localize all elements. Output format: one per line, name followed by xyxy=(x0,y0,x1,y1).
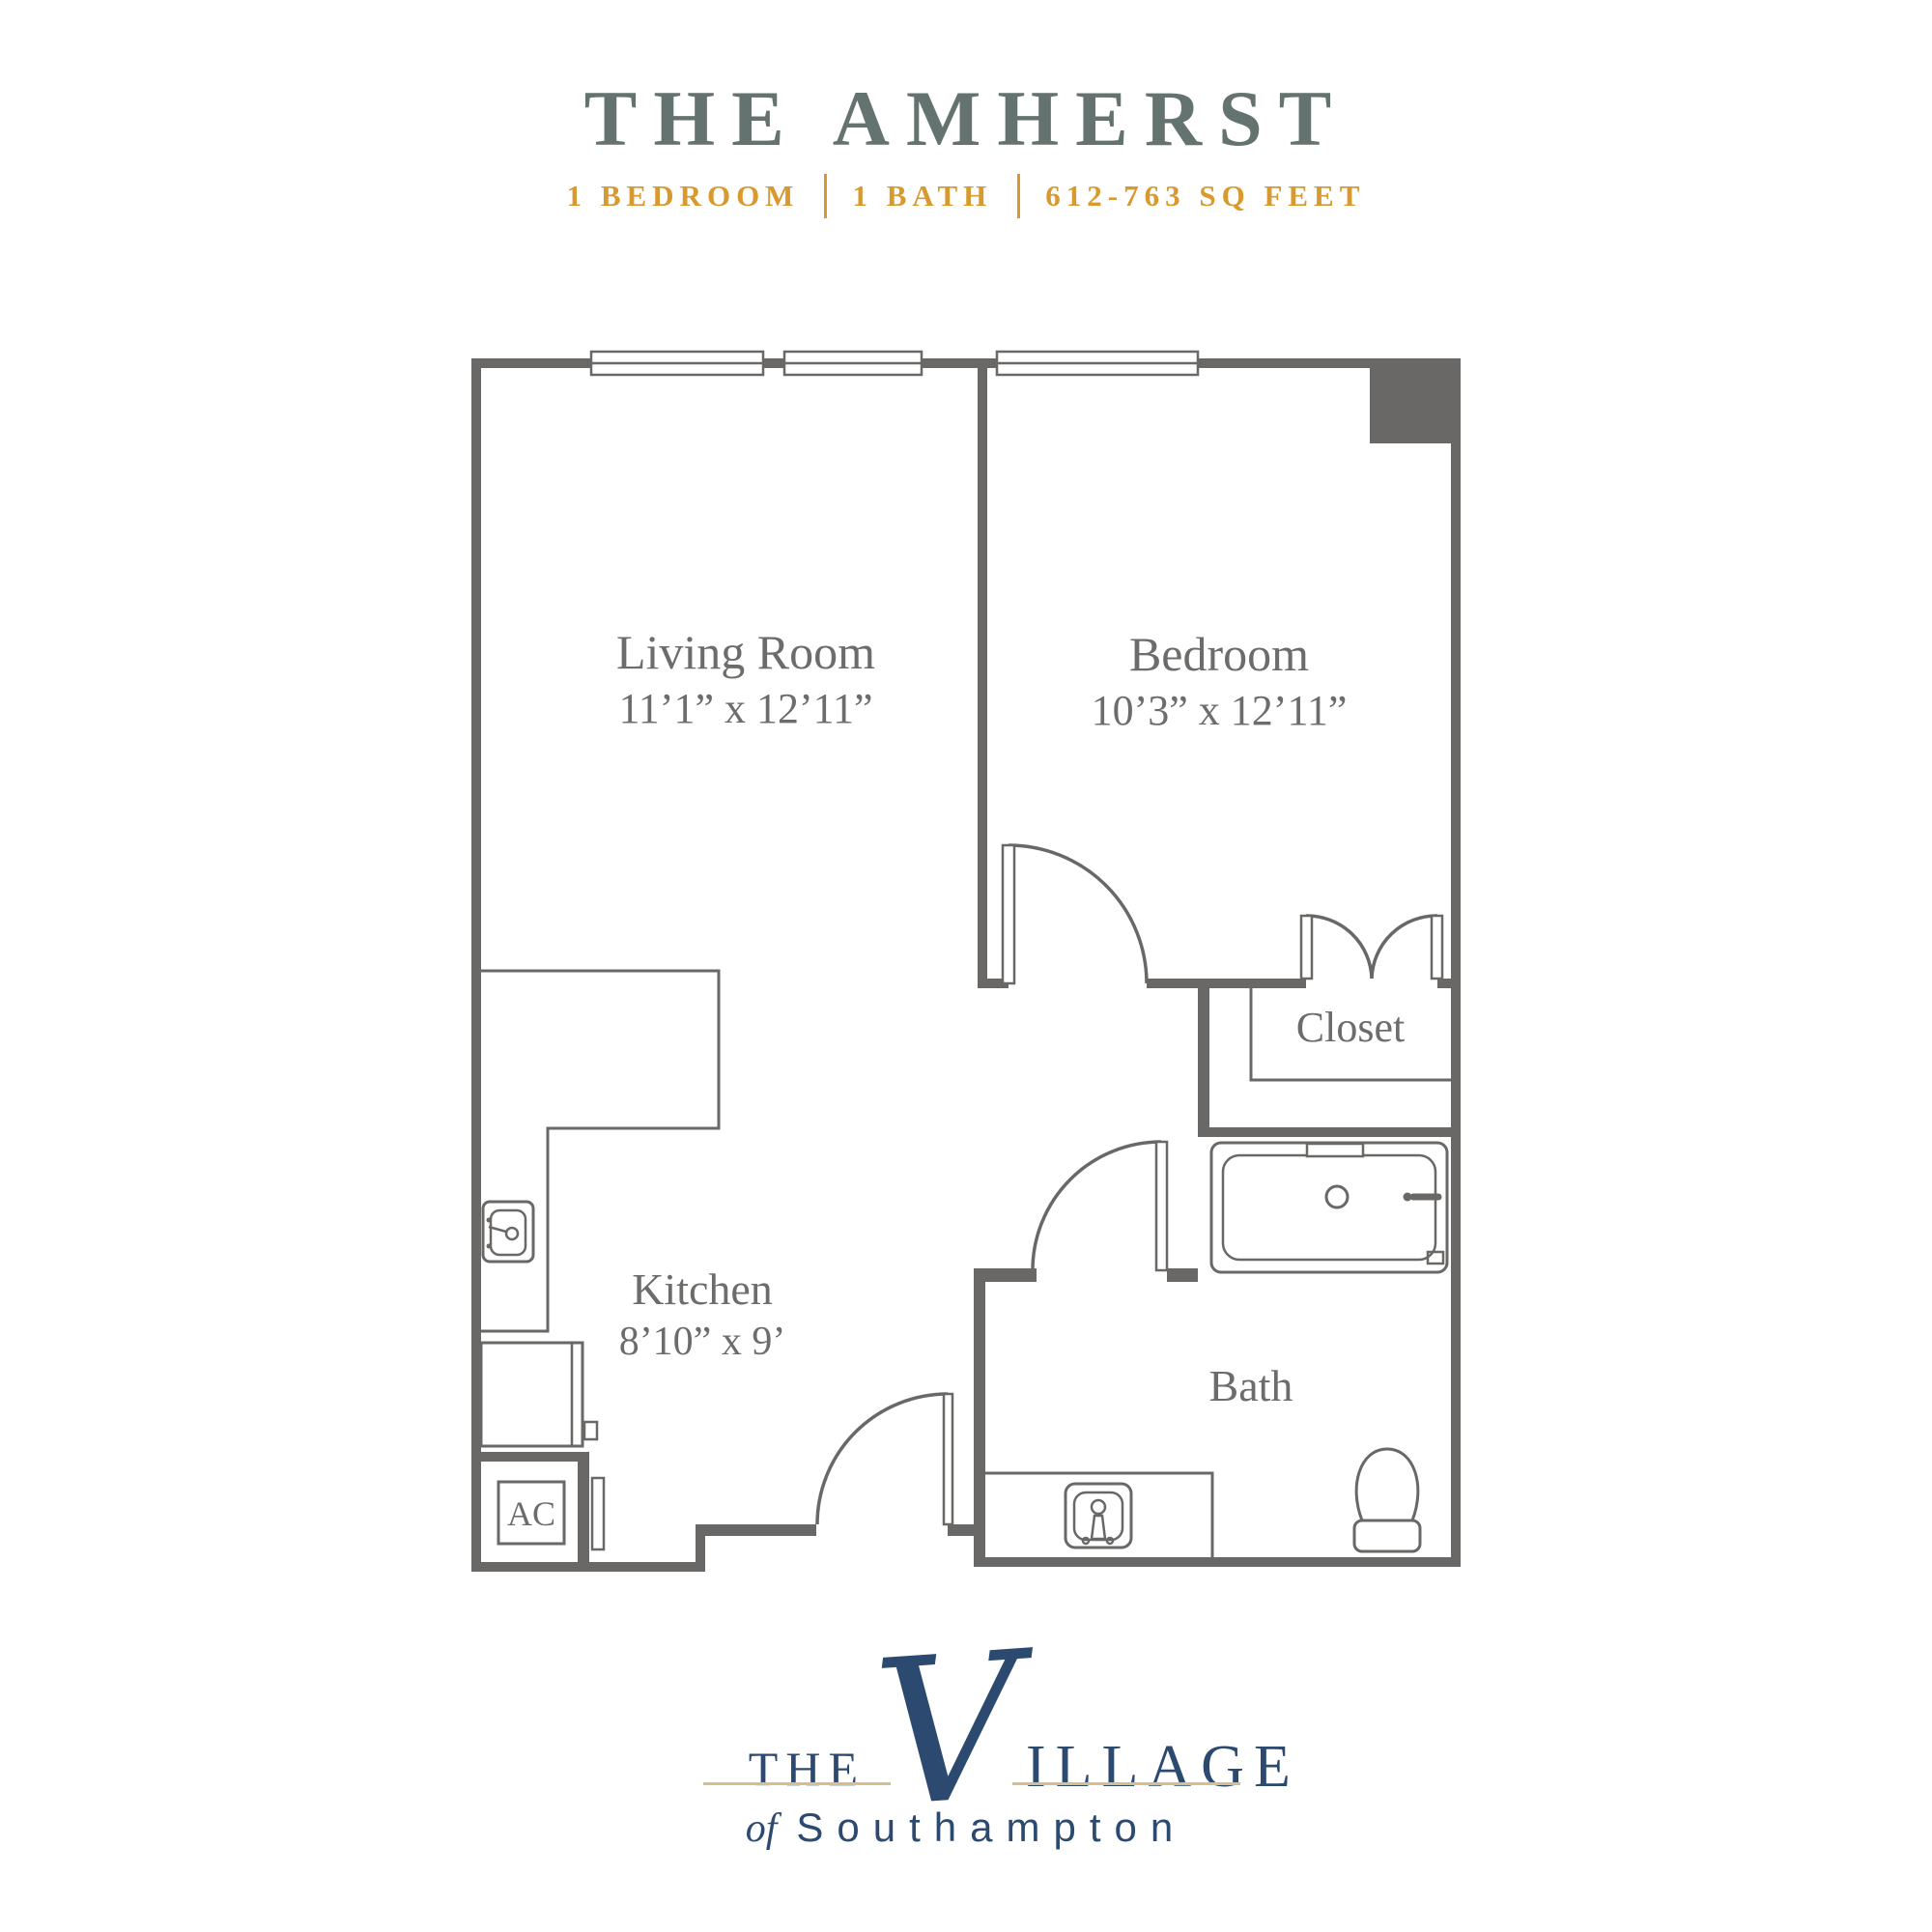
wall xyxy=(974,1268,1037,1282)
logo-rule-right xyxy=(1012,1782,1240,1785)
structural-column xyxy=(1370,368,1451,443)
bathroom-sink-icon xyxy=(1065,1484,1131,1548)
door-leaf xyxy=(944,1394,952,1524)
logo-word-the: THE xyxy=(599,1741,866,1797)
room-labels: Living Room 11’1” x 12’11” Bedroom 10’3”… xyxy=(616,625,1405,1410)
wall xyxy=(1147,979,1306,988)
wall xyxy=(578,1462,589,1564)
window-icon xyxy=(784,352,922,375)
bedroom-dims: 10’3” x 12’11” xyxy=(1092,687,1348,734)
door-leaf xyxy=(1156,1142,1167,1270)
wall xyxy=(471,1452,589,1462)
entry-door xyxy=(817,1394,952,1524)
tagline-place: Southampton xyxy=(796,1804,1186,1851)
kitchen-label: Kitchen xyxy=(632,1264,773,1314)
wall xyxy=(1167,1268,1198,1282)
door-leaf xyxy=(592,1478,604,1549)
wall xyxy=(1437,979,1461,988)
door-leaf xyxy=(1432,916,1442,979)
wall xyxy=(761,358,786,368)
tagline-of: of xyxy=(746,1805,778,1852)
logo-tagline: of Southampton xyxy=(0,1804,1932,1852)
windows xyxy=(591,352,1198,375)
wall xyxy=(974,1270,985,1567)
bath-door xyxy=(1033,1142,1167,1270)
kitchen-sink-icon xyxy=(483,1202,533,1262)
wall xyxy=(701,1524,816,1536)
bath-label: Bath xyxy=(1209,1361,1293,1410)
toilet-icon xyxy=(1354,1449,1420,1551)
living-room-dims: 11’1” x 12’11” xyxy=(618,685,872,732)
wall xyxy=(1196,358,1461,368)
floorplan-page: THE AMHERST 1 BEDROOM 1 BATH 612-763 SQ … xyxy=(0,0,1932,1932)
living-room-label: Living Room xyxy=(616,625,875,679)
wall xyxy=(948,1524,977,1536)
ac-label: AC xyxy=(507,1494,555,1533)
bedroom-door xyxy=(1003,845,1147,983)
logo-word-illage: ILLAGE xyxy=(1026,1733,1300,1802)
wall xyxy=(471,358,593,368)
wall xyxy=(974,1557,1461,1567)
refrigerator-icon xyxy=(481,1343,597,1446)
door-leaf xyxy=(1301,916,1312,979)
closet-doors xyxy=(1301,916,1442,979)
window-icon xyxy=(591,352,763,375)
bathtub-icon xyxy=(1211,1143,1447,1272)
wall xyxy=(978,358,987,988)
wall xyxy=(1198,1127,1461,1137)
door-leaf xyxy=(1003,845,1014,983)
logo-rule-left xyxy=(703,1782,891,1785)
window-icon xyxy=(997,352,1198,375)
wall xyxy=(1451,358,1461,1567)
closet-label: Closet xyxy=(1296,1004,1405,1051)
bedroom-label: Bedroom xyxy=(1129,627,1309,681)
kitchen-dims: 8’10” x 9’ xyxy=(619,1320,786,1364)
wall xyxy=(1198,979,1209,1137)
